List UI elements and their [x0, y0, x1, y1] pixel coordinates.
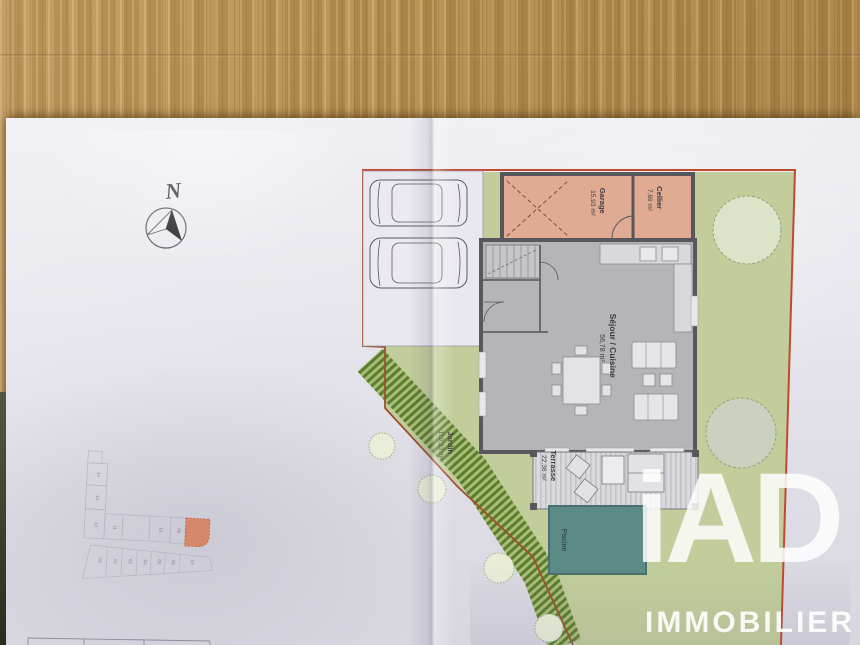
lot-number: 09	[176, 528, 182, 534]
lot-number: 13	[95, 495, 101, 501]
highlighted-lot	[185, 518, 210, 547]
watermark-subtitle: IMMOBILIER	[645, 606, 860, 640]
lot-cell	[122, 515, 150, 541]
lot-number: 03	[127, 558, 133, 564]
lot-cell	[88, 451, 103, 464]
watermark-brand: iAD	[634, 452, 860, 612]
lot-number: 02	[112, 559, 118, 565]
parcel-map: 14 13 12 11 10 09 01 02 03 04 05 06 07	[78, 448, 228, 608]
lot-number: 10	[158, 527, 164, 533]
lot-number: 04	[142, 559, 148, 565]
wood-plank-seam	[0, 54, 860, 57]
tree	[713, 196, 781, 264]
lot-number: 07	[189, 560, 195, 566]
lot-number: 11	[112, 525, 118, 531]
lot-number: 14	[96, 472, 102, 478]
lot-number: 05	[156, 559, 162, 565]
title-block	[24, 634, 214, 645]
lot-number: 06	[170, 560, 176, 566]
lot-number: 01	[97, 558, 103, 564]
staircase	[486, 245, 540, 278]
paper-wrinkle	[40, 130, 370, 270]
lot-number: 12	[93, 522, 99, 528]
label-piscine: Piscine	[560, 529, 567, 552]
table-edge-sliver	[0, 392, 6, 645]
fold-crease	[408, 118, 454, 645]
